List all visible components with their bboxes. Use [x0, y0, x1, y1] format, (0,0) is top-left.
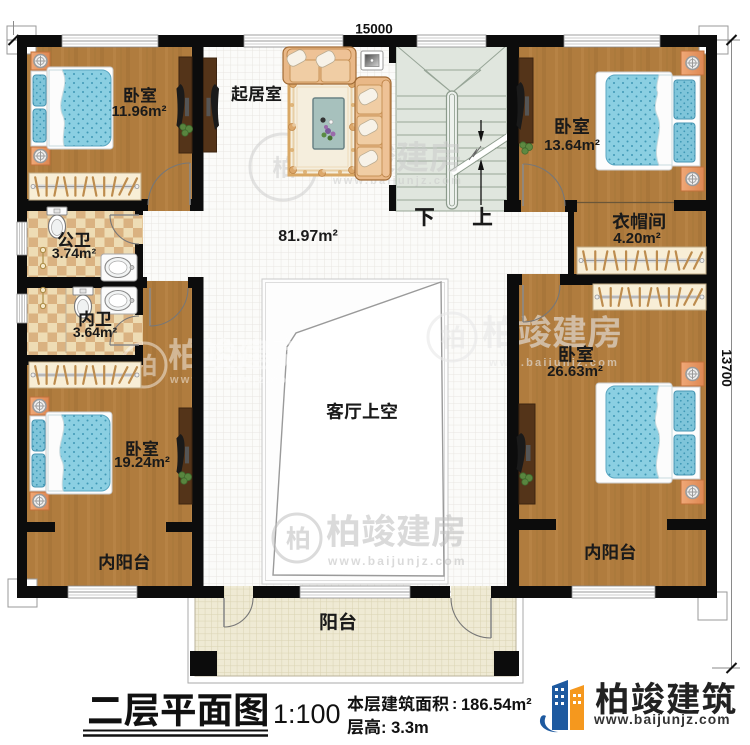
- svg-text:26.63m²: 26.63m²: [547, 363, 603, 380]
- svg-text:3.64m²: 3.64m²: [73, 324, 118, 340]
- svg-text:81.97m²: 81.97m²: [278, 228, 338, 245]
- svg-text::: :: [452, 696, 457, 713]
- svg-text:15000: 15000: [355, 22, 393, 37]
- svg-text:11.96m²: 11.96m²: [111, 103, 166, 120]
- svg-text:www.baijunjz.com: www.baijunjz.com: [593, 712, 731, 727]
- svg-text:13.64m²: 13.64m²: [544, 137, 600, 154]
- svg-text:www.baijunjz.com: www.baijunjz.com: [327, 554, 467, 568]
- svg-text:4.20m²: 4.20m²: [613, 230, 661, 247]
- svg-text:186.54m²: 186.54m²: [461, 696, 532, 714]
- svg-text:www.baijunjz.com: www.baijunjz.com: [332, 175, 463, 187]
- svg-text:19.24m²: 19.24m²: [114, 454, 170, 471]
- svg-text:: 3.3m: : 3.3m: [381, 719, 429, 737]
- svg-text:13700: 13700: [719, 349, 734, 387]
- svg-text:www.baijunjz.com: www.baijunjz.com: [169, 374, 300, 386]
- svg-text:1:100: 1:100: [273, 699, 341, 729]
- svg-text:3.74m²: 3.74m²: [52, 245, 97, 261]
